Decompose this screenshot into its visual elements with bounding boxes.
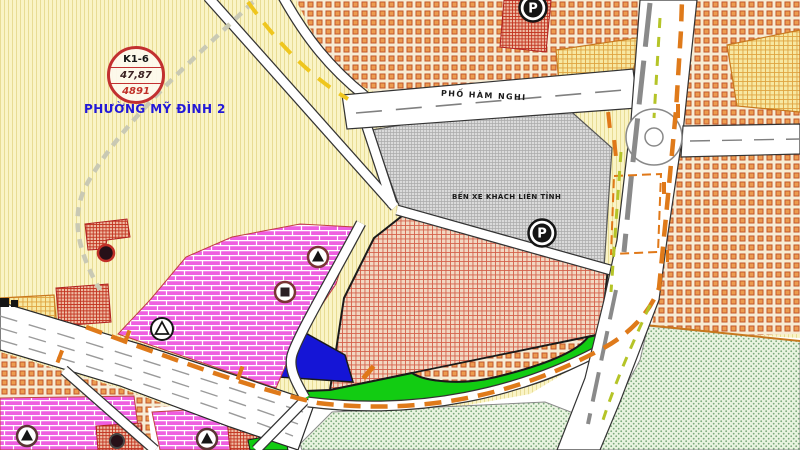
stamp-area-value: 47,87 [110, 68, 162, 84]
ward-name-label: PHƯỜNG MỸ ĐÌNH 2 [84, 102, 224, 116]
parcel-red-village-south [56, 284, 111, 326]
triangle-station-icon [17, 426, 37, 446]
temple-dot-icon [98, 245, 114, 261]
svg-text:P: P [537, 227, 547, 242]
triangle-station-icon [197, 429, 217, 449]
parcel-yellow-northeast [727, 30, 800, 112]
parking-icon: P [520, 0, 547, 22]
zoning-map-canvas[interactable]: P P K1-6 47,87 4891 PHƯỜNG MỸ ĐÌNH 2 PHỐ… [0, 0, 800, 450]
stamp-population-value: 4891 [110, 84, 162, 99]
roundabout-center [645, 128, 663, 146]
square-station-icon [275, 282, 295, 302]
svg-text:P: P [528, 2, 538, 17]
temple-dot-icon [110, 434, 124, 448]
triangle-station-icon [151, 318, 173, 340]
parking-icon: P [529, 220, 556, 247]
bus-station-label: BẾN XE KHÁCH LIÊN TỈNH [452, 193, 561, 201]
zone-stamp: K1-6 47,87 4891 [107, 46, 165, 104]
triangle-station-icon [308, 247, 328, 267]
stamp-code: K1-6 [110, 52, 162, 68]
